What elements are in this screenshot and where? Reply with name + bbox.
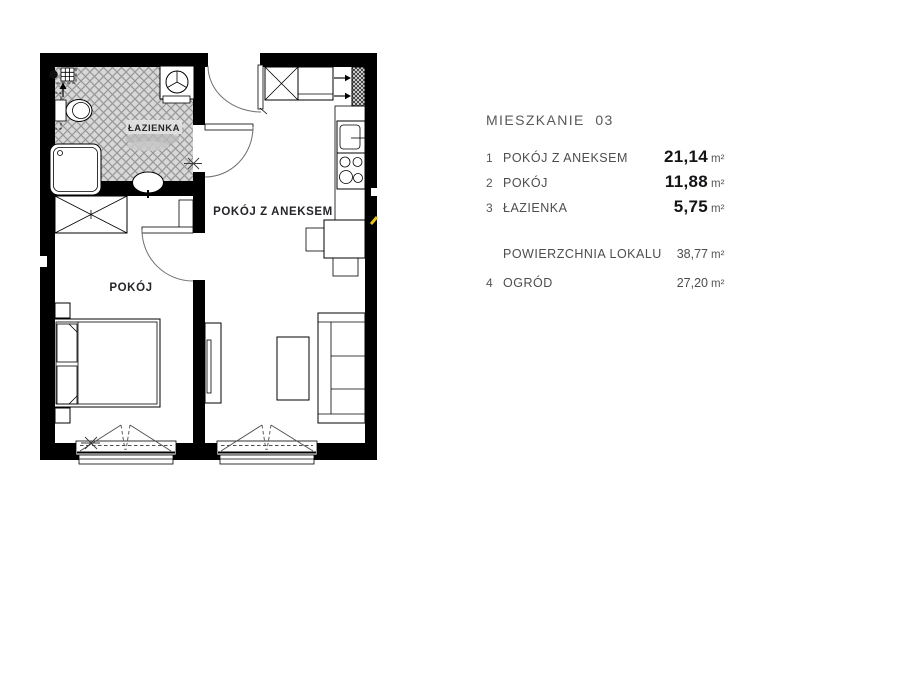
garden-row: 4 OGRÓD 27,20 m² — [486, 274, 746, 294]
tv-unit — [205, 323, 221, 403]
total-area-value: 38,77 — [677, 247, 708, 261]
room-name: POKÓJ — [503, 176, 663, 190]
nightstand — [55, 303, 70, 318]
area-unit: m² — [708, 178, 735, 190]
room-area: 11,88 — [665, 172, 708, 191]
area-unit: m² — [708, 203, 735, 215]
area-row-2: 2 POKÓJ 11,88 m² — [486, 172, 746, 197]
pillow — [57, 324, 77, 362]
bedroom-door — [142, 227, 193, 281]
room-name: POKÓJ Z ANEKSEM — [503, 151, 663, 165]
area-unit: m² — [708, 278, 735, 290]
wall-right — [365, 53, 377, 460]
sofa — [318, 313, 365, 423]
bedroom-door-leaf — [142, 227, 193, 233]
room-name: ŁAZIENKA — [503, 201, 663, 215]
bathroom-door — [184, 124, 253, 177]
hall-wardrobe — [265, 67, 365, 106]
wall-joint-left — [40, 256, 47, 267]
wall-partition-lower — [193, 280, 205, 443]
chair — [333, 258, 358, 276]
window-bedroom — [76, 425, 176, 464]
pillow — [57, 366, 77, 404]
kitchen-counter — [335, 106, 365, 220]
chair — [306, 228, 324, 251]
area-row-1: 1 POKÓJ Z ANEKSEM 21,14 m² — [486, 147, 746, 172]
row-number: 3 — [486, 201, 503, 215]
room-label-bedroom: POKÓJ — [109, 281, 152, 294]
room-label-bathroom: ŁAZIENKA — [128, 123, 180, 134]
hall-cabinet — [298, 67, 333, 100]
room-area: 5,75 — [674, 197, 708, 216]
door-frame-detail — [179, 200, 193, 230]
shaft — [352, 67, 365, 106]
room-area: 21,14 — [664, 147, 708, 166]
dining-table — [306, 220, 365, 276]
legend-panel: MIESZKANIE 03 1 POKÓJ Z ANEKSEM 21,14 m²… — [486, 112, 746, 294]
wall-top-right — [260, 53, 377, 67]
floor-plan: ŁAZIENKA POKÓJ POKÓJ Z ANEKSEM — [0, 0, 450, 500]
row-number: 1 — [486, 151, 503, 165]
garden-value: 27,20 — [677, 276, 708, 290]
tv — [207, 340, 211, 393]
wall-joint-right — [371, 188, 377, 196]
wall-partition-mid — [193, 172, 205, 233]
room-label-annex: POKÓJ Z ANEKSEM — [213, 205, 333, 218]
nightstand — [55, 408, 70, 423]
row-number: 4 — [486, 276, 503, 290]
apartment-title: MIESZKANIE 03 — [486, 112, 746, 128]
washing-machine — [160, 66, 194, 103]
window-living — [217, 425, 317, 464]
area-row-3: 3 ŁAZIENKA 5,75 m² — [486, 197, 746, 222]
wall-bathroom-east-upper — [193, 58, 205, 125]
total-area-label: POWIERZCHNIA LOKALU — [503, 247, 663, 261]
shower — [50, 144, 101, 195]
area-unit: m² — [708, 249, 735, 261]
area-table: 1 POKÓJ Z ANEKSEM 21,14 m² 2 POKÓJ 11,88… — [486, 147, 746, 222]
page: ŁAZIENKA POKÓJ POKÓJ Z ANEKSEM MIESZKANI… — [0, 0, 899, 685]
bathroom-door-leaf — [205, 124, 253, 130]
total-area-row: POWIERZCHNIA LOKALU 38,77 m² — [486, 245, 746, 265]
bedroom-wardrobe — [55, 196, 127, 233]
entrance-door — [208, 65, 267, 114]
coffee-table — [277, 337, 309, 400]
garden-label: OGRÓD — [503, 276, 663, 290]
row-number: 2 — [486, 176, 503, 190]
area-unit: m² — [708, 153, 735, 165]
wall-top-left — [40, 53, 208, 67]
entrance-door-leaf — [258, 65, 263, 109]
bed — [53, 319, 160, 407]
